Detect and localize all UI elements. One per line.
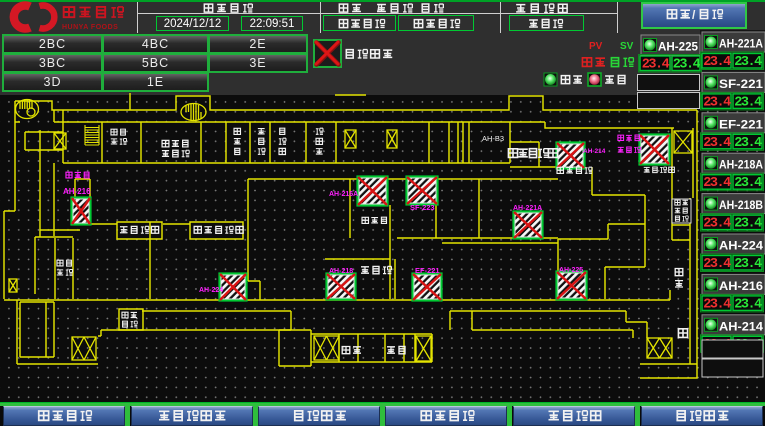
svg-text:23.4: 23.4 — [703, 95, 731, 110]
svg-text:PV: PV — [589, 41, 603, 52]
svg-text:AH-221A: AH-221A — [719, 37, 763, 51]
svg-text:AH-224: AH-224 — [199, 287, 223, 294]
svg-text:EF-221: EF-221 — [719, 117, 763, 131]
svg-text:23.4: 23.4 — [703, 217, 731, 232]
svg-text:AH-225: AH-225 — [559, 267, 583, 274]
svg-text:23.4: 23.4 — [642, 58, 670, 73]
svg-text:23.4: 23.4 — [734, 257, 762, 272]
svg-text:23.4: 23.4 — [703, 257, 731, 272]
svg-text:AH-225: AH-225 — [658, 40, 698, 54]
svg-text:SF-223: SF-223 — [410, 203, 435, 212]
svg-text:AH-214: AH-214 — [583, 148, 606, 155]
svg-text:23.4: 23.4 — [734, 136, 762, 151]
svg-text:AH-B3: AH-B3 — [482, 134, 504, 143]
svg-text:AH-218: AH-218 — [329, 268, 353, 275]
svg-text:23.4: 23.4 — [734, 176, 762, 191]
svg-text:EF-221: EF-221 — [415, 266, 440, 275]
svg-text:SF-221: SF-221 — [719, 77, 763, 91]
svg-text:AH-218A: AH-218A — [719, 158, 763, 172]
svg-text:SV: SV — [620, 41, 634, 52]
svg-text:23.4: 23.4 — [703, 55, 731, 70]
svg-text:23.4: 23.4 — [703, 176, 731, 191]
svg-text:23.4: 23.4 — [734, 55, 762, 70]
svg-text:AH-214: AH-214 — [719, 319, 763, 333]
svg-text:AH-224: AH-224 — [719, 239, 763, 253]
svg-text:/: / — [692, 8, 696, 22]
svg-text:23.4: 23.4 — [734, 297, 762, 312]
svg-text:23.4: 23.4 — [673, 58, 701, 73]
svg-text:23.4: 23.4 — [703, 136, 731, 151]
svg-text:AH-216: AH-216 — [719, 279, 763, 293]
svg-text:23.4: 23.4 — [703, 297, 731, 312]
svg-text:AH-221A: AH-221A — [513, 205, 542, 212]
svg-text:AH-216: AH-216 — [63, 187, 91, 196]
svg-text:AH-216A: AH-216A — [329, 191, 358, 198]
svg-text:23.4: 23.4 — [734, 95, 762, 110]
svg-text:AH-218B: AH-218B — [719, 198, 763, 212]
svg-text:23.4: 23.4 — [734, 217, 762, 232]
svg-text:HUNYA FOODS: HUNYA FOODS — [62, 24, 118, 31]
